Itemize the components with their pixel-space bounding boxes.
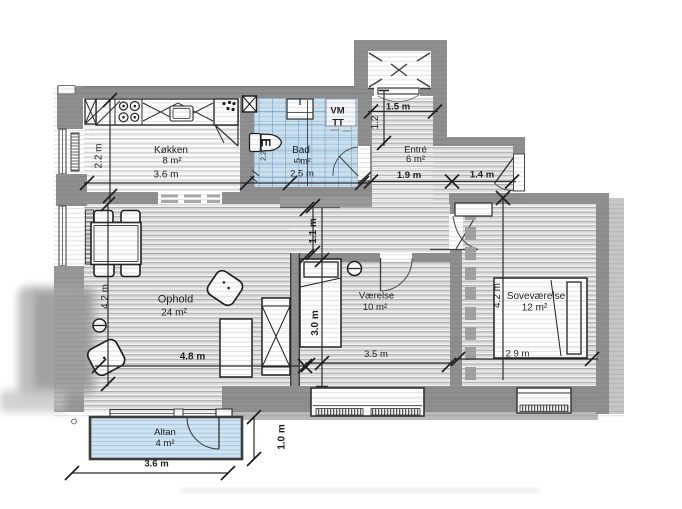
svg-text:4 m²: 4 m² — [156, 438, 175, 449]
svg-text:Altan: Altan — [154, 427, 176, 438]
svg-text:3.6 m: 3.6 m — [144, 459, 168, 470]
svg-text:1.9 m: 1.9 m — [397, 170, 421, 181]
svg-text:1.0 m: 1.0 m — [277, 424, 288, 450]
